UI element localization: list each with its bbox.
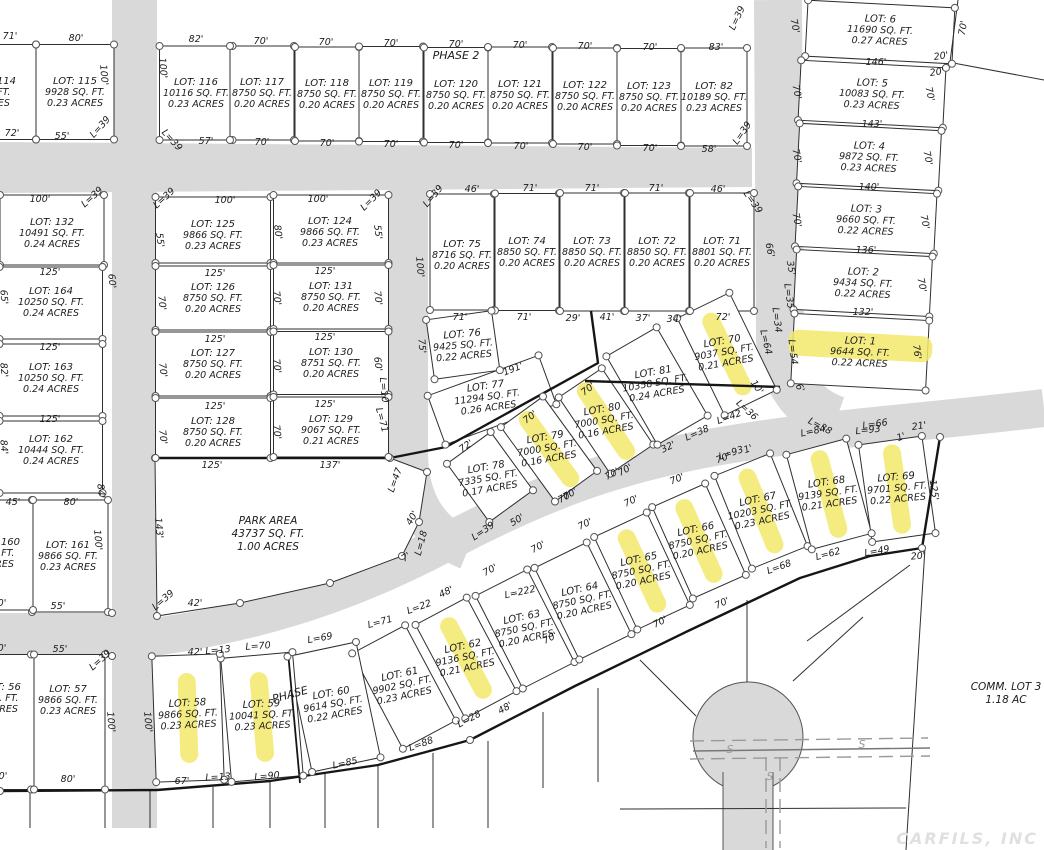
vertex-marker [795,183,802,190]
lot-label-group: LOT: 1228750 SQ. FT.0.20 ACRES [555,80,615,113]
lot-parcel-56 [0,655,34,790]
parcel-line [640,660,696,716]
dimension-label: 100' [413,256,426,278]
dimension-label: 70' [270,424,283,440]
vertex-marker [421,139,428,146]
vertex-marker [519,685,526,692]
vertex-marker [385,454,392,461]
dimension-label: 80' [271,224,284,240]
dimension-label: 70' [481,562,499,579]
lot-sqft-label: 8801 SQ. FT. [692,247,752,258]
vertex-marker [237,600,244,607]
vertex-marker [594,467,601,474]
dimension-label: 100' [104,711,117,733]
vertex-marker [530,487,537,494]
vertex-marker [102,786,109,793]
vertex-marker [555,394,562,401]
vertex-marker [591,534,598,541]
lot-sqft-label: 10491 SQ. FT. [19,228,85,239]
dimension-label: 70' [384,38,399,49]
dimension-label: 60' [105,273,117,289]
lot-sqft-label: 9866 SQ. FT. [38,695,98,706]
dimension-label: 72' [716,312,731,323]
lot-label-group: LOT: 1619866 SQ. FT.0.23 ACRES [38,540,98,573]
lot-sqft-label: 10250 SQ. FT. [18,373,84,384]
vertex-marker [628,631,635,638]
vertex-marker [292,44,299,51]
dimension-label: 46' [465,184,480,195]
dimension-label: 70' [578,142,593,153]
vertex-marker [30,497,37,504]
lot-sqft-label: 8750 SQ. FT. [555,91,615,102]
vertex-marker [783,451,790,458]
dimension-label: L=22 [405,598,433,617]
sewer-label: S [727,743,734,756]
dimension-label: 84' [0,439,10,455]
lot-number-label: LOT: 163 [29,362,73,373]
dimension-label: 20' [929,66,945,79]
plat-map-canvas: SSSLOT: 114SQ. FT.ACRESLOT: 1159928 SQ. … [0,0,1044,850]
lot-acres-label: 0.20 ACRES [564,258,620,269]
dimension-label: 75' [415,338,427,354]
lot-sqft-label: 10444 SQ. FT. [18,445,84,456]
vertex-marker [689,595,696,602]
lot-acres-label: 0.20 ACRES [363,100,419,111]
lot-acres-label: 0.20 ACRES [428,101,484,112]
dimension-label: 55' [51,601,66,612]
vertex-marker [744,45,751,52]
lot-sqft-label: 9866 SQ. FT. [38,551,98,562]
dimension-label: 71' [453,312,468,323]
dimension-label: 71' [523,183,538,194]
vertex-marker [869,538,876,545]
lot-sqft-label: 8850 SQ. FT. [627,247,687,258]
lot-acres-label: 0.23 ACRES [185,241,241,252]
dimension-label: 0' [0,598,6,609]
lot-sqft-label: 8716 SQ. FT. [432,250,492,261]
vertex-marker [99,341,106,348]
dimension-label: 41' [600,312,615,323]
dimension-label: 80' [69,33,84,44]
dimension-label: 125' [315,266,336,277]
vertex-marker [485,44,492,51]
vertex-marker [614,142,621,149]
vertex-marker [154,613,161,620]
vertex-marker [855,441,862,448]
lot-label-group: LOT: 1318750 SQ. FT.0.20 ACRES [301,281,361,314]
dimension-label: 55' [371,224,384,240]
dimension-label: 67' [175,776,190,787]
dimension-label: 100' [215,195,236,206]
lot-sqft-label: 8850 SQ. FT. [562,247,622,258]
vertex-marker [427,307,434,314]
sewer-label: S [859,738,866,751]
lot-acres-label: 0.23 ACRES [168,99,224,110]
lot-acres-label: 0.22 ACRES [837,225,893,238]
vertex-marker [622,308,629,315]
lot-number-label: LOT: 115 [53,76,97,87]
lot-number-label: LOT: 130 [309,347,353,358]
lot-parcel-57 [31,655,105,790]
lot-acres-label: 0.20 ACRES [492,101,548,112]
vertex-marker [99,418,106,425]
vertex-marker [412,621,419,628]
vertex-marker [472,592,479,599]
vertex-marker [30,607,37,614]
vertex-marker [576,656,583,663]
lot-label-group: LOT: 1308751 SQ. FT.0.20 ACRES [301,347,361,380]
dimension-label: 70' [957,20,970,36]
lot-boundary [31,655,105,790]
vertex-marker [349,650,356,657]
vertex-marker [550,45,557,52]
lot-label-group: LOT: 1208750 SQ. FT.0.20 ACRES [426,79,486,112]
vertex-marker [929,253,936,260]
lot-label-group: LOT: 1178750 SQ. FT.0.20 ACRES [232,77,292,110]
dimension-label: 55' [153,232,166,248]
lot-number-label: LOT: 114 [0,76,16,87]
vertex-marker [492,190,499,197]
dimension-label: 100' [156,57,169,79]
lot-number-label: LOT: 71 [703,236,741,247]
lot-sqft-label: 8750 SQ. FT. [361,89,421,100]
vertex-marker [918,433,925,440]
dimension-label: 70' [320,138,335,149]
road-vertical-left [112,0,157,828]
dimension-label: 82' [189,34,204,45]
lot-sqft-label: 8850 SQ. FT. [497,247,557,258]
dimension-label: 132' [853,307,874,318]
lot-acres-label: 0.20 ACRES [303,303,359,314]
dimension-label: 125' [205,268,226,279]
vertex-marker [796,120,803,127]
dimension-label: 70' [514,141,529,152]
lot-label-group: LOT: 1299067 SQ. FT.0.21 ACRES [301,414,361,447]
lot-number-label: LOT: 82 [695,81,733,92]
vertex-marker [463,594,470,601]
dimension-label: 70' [270,290,283,306]
vertex-marker [424,392,431,399]
vertex-marker [702,480,709,487]
dimension-label: L=90 [254,770,280,783]
parcel-line [620,808,906,809]
vertex-marker [33,41,40,48]
dimension-label: 70' [578,41,593,52]
vertex-marker [485,140,492,147]
vertex-marker [356,138,363,145]
lot-label-group: LOT: 1278750 SQ. FT.0.20 ACRES [183,348,243,381]
lot-acres-label: 0.20 ACRES [303,369,359,380]
lot-acres-label: 0.24 ACRES [23,308,79,319]
lot-acres-label: 0.21 ACRES [303,436,359,447]
vertex-marker [726,289,733,296]
vertex-marker [152,455,159,462]
lot-sqft-label: 9866 SQ. FT. [183,230,243,241]
vertex-marker [798,57,805,64]
vertex-marker [356,43,363,50]
dimension-label: 70' [622,493,640,509]
lot-acres-label: ACRES [0,559,14,570]
vertex-marker [497,424,504,431]
dimension-label: 143' [152,517,165,539]
vertex-marker [111,136,118,143]
lot-number-label: LOT: 118 [305,78,349,89]
lot-sqft-label: 8750 SQ. FT. [183,427,243,438]
dimension-label: 70' [713,595,731,611]
lot-number-label: LOT: 125 [191,219,235,230]
lot-number-label: LOT: 117 [240,77,285,88]
dimension-label: 125' [40,414,61,425]
lot-sqft-label: 9928 SQ. FT. [45,87,105,98]
dimension-label: 100' [141,711,154,733]
dimension-label: 70' [156,429,169,445]
dimension-label: L=71 [366,614,393,631]
vertex-marker [937,434,944,441]
vertex-marker [686,601,693,608]
dimension-label: 45' [6,497,21,508]
dimension-label: 71' [3,31,18,42]
vertex-marker [687,190,694,197]
lot-sqft-label: SQ. FT. [0,548,14,559]
vertex-marker [385,192,392,199]
park-area-label: 43737 SQ. FT. [232,528,305,540]
lot-label-group: LOT: 1288750 SQ. FT.0.20 ACRES [183,416,243,449]
dimension-label: 48' [496,700,514,717]
vertex-marker [933,190,940,197]
dimension-label: L=13 [205,771,231,783]
dimension-label: 20' [910,550,926,562]
lot-label-group: LOT: 1198750 SQ. FT.0.20 ACRES [361,78,421,111]
vertex-marker [598,365,605,372]
vertex-marker [488,307,495,314]
vertex-marker [109,610,116,617]
lot-sqft-label: 8750 SQ. FT. [183,293,243,304]
lot-number-label: LOT: 129 [309,414,353,425]
dimension-label: 0' [0,771,7,782]
dimension-label: 70' [270,358,283,374]
vertex-marker [704,412,711,419]
dimension-label: L=39 [727,4,748,32]
lot-sqft-label: SQ. FT. [0,693,18,704]
lot-acres-label: 0.27 ACRES [851,35,907,48]
lot-acres-label: 0.20 ACRES [557,102,613,113]
lot-acres-label: 0.24 ACRES [23,456,79,467]
lot-number-label: LOT: 75 [443,239,481,250]
dimension-label: 84' [94,483,106,499]
lot-sqft-label: 8750 SQ. FT. [183,359,243,370]
dimension-label: 70' [643,42,658,53]
dimension-label: 20' [933,50,949,63]
plat-map-page: SSSLOT: 114SQ. FT.ACRESLOT: 1159928 SQ. … [0,0,1044,850]
lot-number-label: LOT: 73 [573,236,611,247]
commercial-lot-label: COMM. LOT 3 [971,681,1042,693]
dimension-label: 140' [859,182,880,193]
vertex-marker [227,137,234,144]
dimension-label: 48' [437,584,455,600]
dimension-label: 70' [371,290,384,306]
dimension-label: 83' [709,42,724,53]
vertex-marker [156,43,163,50]
dimension-label: 42' [188,647,203,658]
vertex-marker [653,324,660,331]
lot-acres-label: 0.20 ACRES [185,438,241,449]
lot-acres-label: 0.20 ACRES [234,99,290,110]
watermark-text: CARFILS, INC [896,829,1038,848]
lot-acres-label: 0.20 ACRES [185,370,241,381]
vertex-marker [423,316,430,323]
vertex-marker [678,143,685,150]
dimension-label: 70' [155,295,168,311]
lot-number-label: LOT: 74 [508,236,546,247]
dimension-label: 29' [566,313,581,324]
dimension-label: 37' [636,313,651,324]
vertex-marker [111,41,118,48]
lot-acres-label: 0.24 ACRES [24,239,80,250]
vertex-marker [649,504,656,511]
dimension-label: 70' [643,143,658,154]
lot-sqft-label: 10189 SQ. FT. [681,92,747,103]
vertex-marker [773,386,780,393]
parcel-line [793,617,863,681]
vertex-marker [402,622,409,629]
commercial-lot-label: 1.18 AC [985,694,1027,706]
dimension-label: L=49 [864,544,891,559]
vertex-marker [938,127,945,134]
vertex-marker [487,429,494,436]
parcel-line [807,565,910,641]
dimension-label: 100' [97,64,110,86]
dimension-label: 72' [5,128,20,139]
dimension-label: 80' [64,497,79,508]
dimension-label: 0' [0,643,6,654]
dimension-label: 70' [255,137,270,148]
dimension-label: 100' [91,529,104,551]
lot-number-label: LOT: 127 [191,348,236,359]
lot-acres-label: 0.20 ACRES [621,103,677,114]
vertex-marker [153,779,160,786]
dimension-label: 70' [576,516,594,532]
lot-acres-label: 0.20 ACRES [629,258,685,269]
vertex-marker [843,435,850,442]
vertex-marker [634,626,641,633]
vertex-marker [805,0,812,4]
lot-number-label: LOT: 72 [638,236,676,247]
lot-acres-label: 0.22 ACRES [834,288,890,301]
lot-label-group: LOT: 1249866 SQ. FT.0.23 ACRES [300,216,360,249]
dimension-label: 21' [911,420,927,433]
vertex-marker [0,192,4,199]
lot-boundary [0,655,34,790]
vertex-marker [270,192,277,199]
vertex-marker [0,788,4,795]
vertex-marker [539,393,546,400]
vertex-marker [152,329,159,336]
vertex-marker [751,308,758,315]
vertex-marker [868,530,875,537]
dimension-label: L=62 [814,546,841,563]
lot-number-label: LOT: 164 [29,286,73,297]
lot-number-label: LOT: 124 [308,216,352,227]
dimension-label: 46' [711,184,726,195]
dimension-label: L=13 [205,644,231,657]
vertex-marker [270,454,277,461]
vertex-marker [309,768,316,775]
lot-number-label: LOT: 119 [369,78,413,89]
dimension-label: 70' [529,539,547,556]
vertex-marker [553,401,560,408]
lot-label-group: LOT: 1159928 SQ. FT.0.23 ACRES [45,76,105,109]
vertex-marker [531,564,538,571]
lot-sqft-label: SQ. FT. [0,87,10,98]
vertex-marker [377,754,384,761]
dimension-label: 70' [254,36,269,47]
vertex-marker [550,141,557,148]
lot-acres-label: 0.23 ACRES [686,103,742,114]
vertex-marker [0,418,3,425]
dimension-label: 70' [384,139,399,150]
parcel-line [948,62,1044,80]
lot-number-label: LOT: 120 [434,79,478,90]
vertex-marker [33,136,40,143]
vertex-marker [951,4,958,11]
vertex-marker [270,262,277,269]
vertex-marker [421,44,428,51]
vertex-marker [926,317,933,324]
vertex-marker [791,310,798,317]
lot-number-label: LOT: 160 [0,537,20,548]
vertex-marker [300,772,307,779]
dimension-label: 125' [205,401,226,412]
dimension-label: 76' [910,344,923,360]
lot-number-label: LOT: 121 [498,79,542,90]
vertex-marker [442,441,449,448]
vertex-marker [922,387,929,394]
lot-sqft-label: 8750 SQ. FT. [297,89,357,100]
dimension-label: 60' [371,356,384,372]
vertex-marker [0,490,3,497]
vertex-marker [687,308,694,315]
lot-number-label: LOT: 57 [49,684,87,695]
dimension-label: 137' [320,460,341,471]
vertex-marker [443,460,450,467]
vertex-marker [385,262,392,269]
lot-sqft-label: 8750 SQ. FT. [232,88,292,99]
dimension-label: 82' [0,362,10,378]
dimension-label: 143' [862,119,883,130]
lot-acres-label: 0.23 ACRES [840,162,896,175]
dimension-label: 42' [188,598,203,609]
vertex-marker [557,190,564,197]
vertex-marker [742,571,749,578]
lot-number-label: LOT: 126 [191,282,235,293]
lot-acres-label: 0.22 ACRES [831,357,887,370]
vertex-marker [467,737,474,744]
vertex-marker [431,376,438,383]
vertex-marker [535,352,542,359]
lot-label-group: LOT: 1259866 SQ. FT.0.23 ACRES [183,219,243,252]
vertex-marker [767,450,774,457]
vertex-marker [603,353,610,360]
vertex-marker [31,651,38,658]
vertex-marker [424,469,431,476]
vertex-marker [744,143,751,150]
dimension-label: 136' [856,245,877,256]
lot-acres-label: 0.20 ACRES [434,261,490,272]
lot-sqft-label: 9067 SQ. FT. [301,425,361,436]
dimension-label: 71' [517,312,532,323]
vertex-marker [932,530,939,537]
dimension-label: 71' [585,183,600,194]
